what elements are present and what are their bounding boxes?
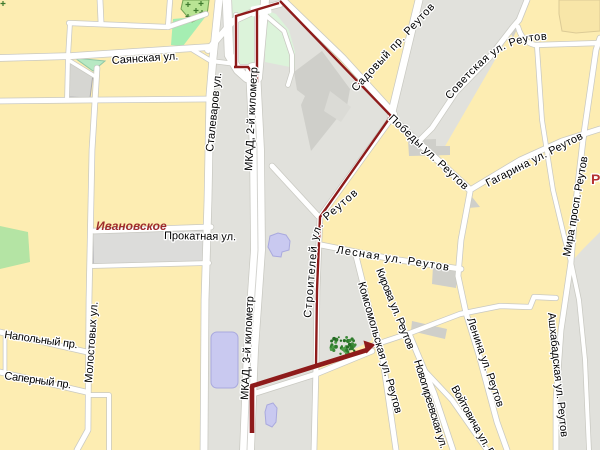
svg-text:Прокатная ул.: Прокатная ул. — [164, 230, 236, 243]
svg-text:Ивановское: Ивановское — [96, 219, 167, 233]
svg-text:Реутов: Реутов — [591, 171, 600, 187]
